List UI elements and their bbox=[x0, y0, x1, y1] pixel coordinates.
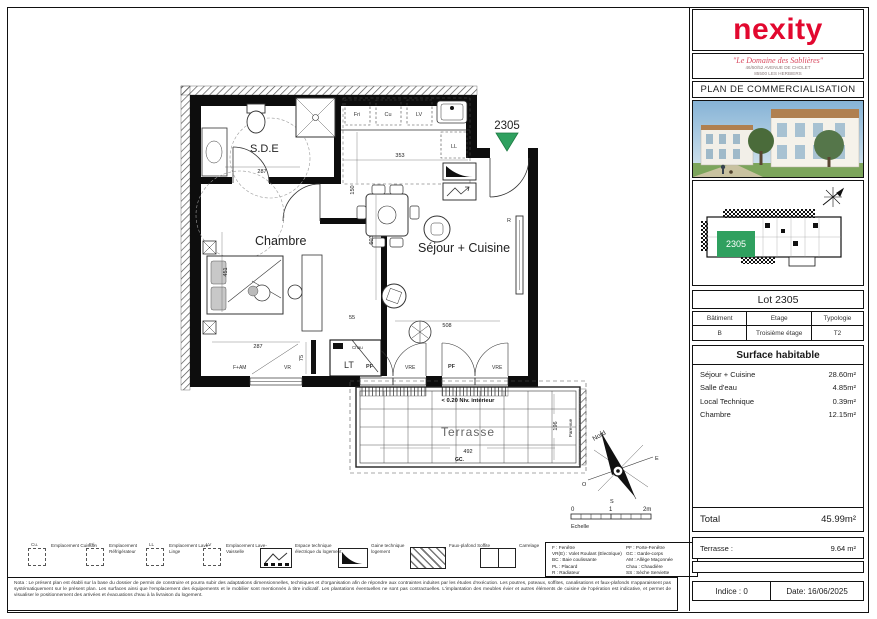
surface-table-title: Surface habitable bbox=[693, 346, 863, 365]
indice-cell: Indice : 0 bbox=[693, 582, 771, 600]
dim-55: 55 bbox=[349, 315, 355, 321]
dashed-box-icon: Fri. bbox=[86, 548, 104, 566]
total-label: Total bbox=[700, 514, 720, 525]
room-label-sde: S.D.E bbox=[250, 143, 279, 155]
compass-south-label: S bbox=[610, 499, 614, 505]
legend-item-cuisson: Cu. bbox=[28, 548, 46, 566]
tag-pf1: PF bbox=[366, 364, 374, 370]
project-name: "Le Domaine des Sablières" bbox=[693, 56, 863, 65]
dim-kitchen-depth: 150 bbox=[350, 185, 356, 194]
notes-text: Nota : Le présent plan est établi sur la… bbox=[14, 581, 671, 598]
tag-cu: Cu bbox=[384, 112, 391, 118]
building-render bbox=[693, 101, 863, 177]
dim-sde-width: 287 bbox=[257, 169, 266, 175]
scale-bar: 0 1 2m Echelle bbox=[571, 507, 651, 530]
legend-tag: LL bbox=[149, 542, 154, 547]
surface-total-row: Total 45.99m² bbox=[693, 507, 863, 531]
terrace-label: Terrasse : bbox=[700, 544, 733, 553]
tag-chau: Chau bbox=[352, 345, 363, 350]
project-box: "Le Domaine des Sablières" 46/50/52 AVEN… bbox=[692, 53, 864, 79]
legend-item-lave-linge: LL bbox=[146, 548, 164, 566]
dim-terrasse-depth: 196 bbox=[553, 421, 559, 430]
site-compass-icon bbox=[823, 187, 843, 207]
surface-value: 4.85m² bbox=[833, 383, 856, 392]
dashed-box-icon: LV bbox=[203, 548, 221, 566]
surface-table: Surface habitable Séjour + Cuisine 28.60… bbox=[692, 345, 864, 532]
dashed-box-icon: Cu. bbox=[28, 548, 46, 566]
plan-sheet: Fri Cu LV LL bbox=[0, 0, 877, 619]
radiator: R bbox=[507, 216, 523, 294]
legend-tag: Fri. bbox=[89, 542, 96, 547]
notes-box: Nota : Le présent plan est établi sur la… bbox=[7, 577, 678, 611]
terrace-gc-label: GC. bbox=[455, 457, 465, 463]
dim-sejour-width: 508 bbox=[442, 323, 451, 329]
bedroom-furniture bbox=[196, 171, 322, 334]
dim-terrasse-width: 492 bbox=[463, 449, 472, 455]
surface-label: Séjour + Cuisine bbox=[700, 370, 755, 379]
surface-value: 0.39m² bbox=[833, 397, 856, 406]
surface-row: Salle d'eau 4.85m² bbox=[693, 379, 863, 393]
tag-fri: Fri bbox=[354, 112, 360, 118]
lot-info-table: Bâtiment Etage Typologie B Troisième éta… bbox=[692, 311, 864, 341]
living-furniture bbox=[357, 185, 450, 343]
col-header-batiment: Bâtiment bbox=[693, 312, 747, 326]
room-label-sejour: Séjour + Cuisine bbox=[418, 241, 510, 255]
floor-plan-svg: Fri Cu LV LL bbox=[0, 0, 690, 540]
dashed-box-icon: LL bbox=[146, 548, 164, 566]
legend-strip: Cu. Emplacement Cuisson Fri. Emplacement… bbox=[8, 540, 688, 577]
cell-typologie: T2 bbox=[812, 326, 863, 340]
tag-vr: VR bbox=[284, 365, 291, 371]
room-label-chambre: Chambre bbox=[255, 234, 306, 248]
site-lot-number: 2305 bbox=[726, 239, 746, 249]
dim-75: 75 bbox=[299, 355, 305, 361]
surface-label: Salle d'eau bbox=[700, 383, 737, 392]
cell-etage: Troisième étage bbox=[747, 326, 812, 340]
surface-row: Séjour + Cuisine 28.60m² bbox=[693, 365, 863, 379]
surface-label: Local Technique bbox=[700, 397, 754, 406]
panel-divider bbox=[689, 7, 690, 611]
tag-ll: LL bbox=[451, 144, 457, 150]
surface-label: Chambre bbox=[700, 410, 731, 419]
col-header-etage: Etage bbox=[747, 312, 812, 326]
lot-title-box: Lot 2305 bbox=[692, 290, 864, 309]
surface-value: 28.60m² bbox=[828, 370, 856, 379]
scale-2m: 2m bbox=[643, 507, 651, 513]
legend-tag: LV bbox=[206, 542, 211, 547]
dim-chambre-width: 287 bbox=[253, 344, 262, 350]
dim-kitchen-width: 353 bbox=[395, 153, 404, 159]
lot-marker-triangle bbox=[496, 133, 518, 151]
legend-item-lave-vaisselle: LV bbox=[203, 548, 221, 566]
nexity-logo: nexity bbox=[733, 13, 823, 47]
terrace-parevue-label: Pare-vue bbox=[568, 418, 573, 437]
surface-row: Chambre 12.15m² bbox=[693, 406, 863, 420]
terrace-level-note: < 0.20 Niv. intérieur bbox=[442, 398, 496, 404]
dim-sejour-length: 603 bbox=[369, 235, 375, 244]
date-cell: Date: 16/06/2025 bbox=[771, 582, 863, 600]
tag-radiator: R bbox=[507, 218, 511, 224]
col-header-typologie: Typologie bbox=[812, 312, 863, 326]
surface-value: 12.15m² bbox=[828, 410, 856, 419]
abbrev-line: AM : Allège Maçonnée bbox=[626, 557, 673, 563]
doc-title: PLAN DE COMMERCIALISATION bbox=[701, 84, 856, 95]
compass-west-label: O bbox=[582, 482, 587, 488]
lot-marker-number: 2305 bbox=[494, 120, 520, 132]
tag-pf2: PF bbox=[448, 364, 456, 370]
building-render-box bbox=[692, 100, 864, 178]
site-plan-box: 2305 bbox=[692, 180, 864, 286]
tag-lt: LT bbox=[344, 360, 354, 370]
cell-batiment: B bbox=[693, 326, 747, 340]
revision-row: Indice : 0 Date: 16/06/2025 bbox=[692, 581, 864, 601]
scale-label: Echelle bbox=[571, 524, 589, 530]
terrace-row: Terrasse : 9.64 m² bbox=[692, 537, 864, 559]
carrelage-icon bbox=[480, 548, 516, 568]
scale-1: 1 bbox=[609, 507, 613, 513]
site-plan: 2305 bbox=[693, 181, 863, 285]
legend-tag: Cu. bbox=[31, 542, 38, 547]
surface-row: Local Technique 0.39m² bbox=[693, 392, 863, 406]
legend-item-refrigerateur: Fri. bbox=[86, 548, 104, 566]
tag-f-am: F+AM bbox=[233, 365, 246, 371]
electric-panel-icon bbox=[260, 548, 292, 568]
lot-title: Lot 2305 bbox=[758, 294, 799, 306]
dim-chambre-length: 451 bbox=[223, 267, 229, 276]
logo-box: nexity bbox=[692, 9, 864, 51]
project-address-line2: 85500 LES HERBIERS bbox=[693, 71, 863, 77]
scale-0: 0 bbox=[571, 507, 575, 513]
tag-lv: LV bbox=[416, 112, 423, 118]
entrance-technical-icons bbox=[443, 163, 476, 200]
abbreviations-box: F : Fenêtre VR(E) : Volet Roulant (Elect… bbox=[545, 542, 698, 577]
abbreviations-col2: PF : Porte-Fenêtre GC : Garde-corps AM :… bbox=[626, 545, 673, 576]
abbreviations-col1: F : Fenêtre VR(E) : Volet Roulant (Elect… bbox=[552, 545, 622, 576]
total-value: 45.99m² bbox=[821, 514, 856, 525]
gaine-technique-icon bbox=[338, 548, 368, 568]
tag-vre1: VRE bbox=[405, 365, 416, 371]
technical-room: LT Chau bbox=[311, 340, 381, 376]
lot-marker: 2305 bbox=[494, 120, 520, 151]
soffit-hatch-icon bbox=[410, 547, 446, 569]
abbrev-line: R : Radiateur bbox=[552, 570, 622, 576]
compass-east-label: E bbox=[655, 456, 659, 462]
tag-vre2: VRE bbox=[492, 365, 503, 371]
abbrev-line: SS : Sèche Serviette bbox=[626, 570, 673, 576]
compass-rose: Nord E O S bbox=[582, 429, 659, 505]
terrace-value: 9.64 m² bbox=[831, 544, 856, 553]
room-label-terrasse: Terrasse bbox=[441, 425, 495, 439]
empty-row bbox=[692, 561, 864, 573]
doc-title-box: PLAN DE COMMERCIALISATION bbox=[692, 81, 864, 98]
